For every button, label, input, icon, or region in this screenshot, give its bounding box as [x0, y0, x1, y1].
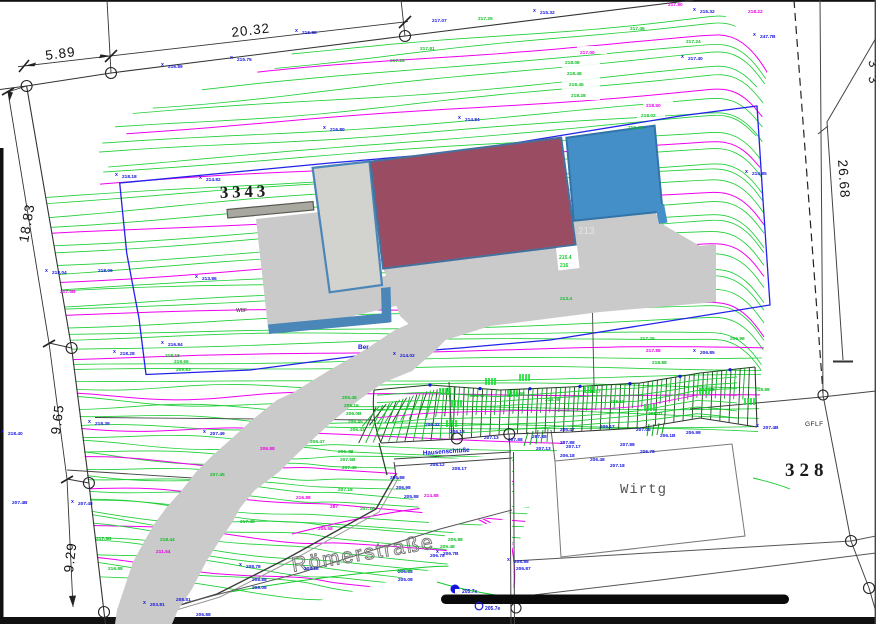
- svg-text:208.08: 208.08: [252, 585, 267, 591]
- svg-text:217.45: 217.45: [630, 26, 645, 32]
- svg-text:206.48: 206.48: [590, 457, 605, 463]
- svg-text:211.88: 211.88: [397, 568, 412, 574]
- svg-text:247.7B: 247.7B: [760, 34, 776, 40]
- svg-text:x: x: [230, 55, 233, 61]
- svg-text:207.49: 207.49: [210, 431, 225, 437]
- svg-text:x: x: [115, 172, 118, 178]
- svg-text:207.05: 207.05: [636, 427, 651, 433]
- svg-text:x: x: [436, 549, 439, 555]
- svg-text:x: x: [323, 125, 326, 131]
- svg-text:x: x: [507, 557, 510, 563]
- svg-text:x: x: [756, 423, 759, 429]
- svg-text:208.81: 208.81: [176, 597, 191, 603]
- svg-text:x: x: [745, 169, 748, 175]
- svg-text:x: x: [393, 351, 396, 357]
- svg-text:217.00: 217.00: [580, 50, 595, 56]
- svg-text:218.48: 218.48: [567, 71, 582, 77]
- svg-text:217.25: 217.25: [640, 336, 655, 342]
- svg-text:208.88: 208.88: [514, 559, 529, 565]
- svg-text:216.88: 216.88: [296, 495, 311, 501]
- svg-text:218.50: 218.50: [646, 103, 661, 109]
- svg-text:x: x: [203, 429, 206, 435]
- svg-text:208.18: 208.18: [304, 566, 319, 572]
- svg-text:x: x: [458, 115, 461, 121]
- svg-text:206.13: 206.13: [450, 429, 465, 435]
- svg-text:205.7e: 205.7e: [485, 606, 501, 612]
- svg-text:206.15: 206.15: [344, 403, 359, 409]
- svg-text:x: x: [239, 562, 242, 568]
- svg-text:207.45: 207.45: [342, 465, 357, 471]
- svg-text:217.40: 217.40: [688, 56, 703, 62]
- svg-text:x: x: [753, 32, 756, 38]
- svg-text:205.08: 205.08: [398, 577, 413, 583]
- svg-text:x: x: [195, 274, 198, 280]
- svg-text:216.80: 216.80: [330, 127, 345, 133]
- svg-text:x: x: [693, 348, 696, 354]
- svg-text:328: 328: [785, 460, 829, 481]
- svg-text:206.88: 206.88: [260, 446, 275, 452]
- svg-text:206.7B: 206.7B: [443, 551, 459, 557]
- svg-text:x: x: [533, 8, 536, 14]
- svg-text:218.18: 218.18: [122, 174, 137, 180]
- svg-text:218.18: 218.18: [610, 399, 625, 405]
- svg-text:207.48: 207.48: [78, 501, 93, 507]
- svg-text:206.47: 206.47: [310, 439, 325, 445]
- svg-text:26.68: 26.68: [835, 159, 853, 199]
- svg-text:214.85: 214.85: [752, 171, 767, 177]
- svg-text:207.88: 207.88: [508, 437, 523, 443]
- svg-text:208.78: 208.78: [246, 564, 261, 570]
- svg-text:203.81: 203.81: [150, 602, 165, 608]
- svg-text:206.45: 206.45: [348, 419, 363, 425]
- svg-text:217.07: 217.07: [432, 18, 447, 24]
- svg-text:206.88: 206.88: [196, 612, 211, 618]
- svg-text:206.42: 206.42: [425, 422, 440, 428]
- svg-text:Ber: Ber: [358, 344, 369, 351]
- svg-text:206.87: 206.87: [516, 566, 531, 572]
- svg-text:213.86: 213.86: [202, 276, 217, 282]
- svg-text:217.81: 217.81: [420, 46, 435, 52]
- svg-text:218.40: 218.40: [8, 431, 23, 437]
- svg-text:206.0B: 206.0B: [346, 411, 362, 417]
- svg-text:218.18: 218.18: [165, 353, 180, 359]
- svg-text:x: x: [71, 499, 74, 505]
- svg-text:218.39: 218.39: [95, 421, 110, 427]
- svg-text:217.25: 217.25: [478, 16, 493, 22]
- svg-text:214.84: 214.84: [465, 117, 480, 123]
- svg-text:205.88: 205.88: [448, 537, 463, 543]
- svg-text:218.45: 218.45: [569, 82, 584, 88]
- svg-text:216.84: 216.84: [168, 342, 183, 348]
- svg-text:x: x: [143, 600, 146, 606]
- svg-text:207.88: 207.88: [620, 442, 635, 448]
- svg-text:216: 216: [560, 263, 569, 269]
- svg-text:208.88: 208.88: [252, 577, 267, 583]
- svg-text:214.82: 214.82: [206, 177, 221, 183]
- svg-text:217.88: 217.88: [646, 348, 661, 354]
- svg-text:207.4B: 207.4B: [12, 500, 28, 506]
- svg-text:206.17: 206.17: [600, 424, 615, 430]
- svg-text:205.45: 205.45: [342, 395, 357, 401]
- svg-text:Wirtg: Wirtg: [620, 482, 667, 498]
- svg-text:x: x: [88, 419, 91, 425]
- svg-text:218.02: 218.02: [641, 113, 656, 119]
- svg-text:207.45: 207.45: [210, 472, 225, 478]
- svg-text:209.83: 209.83: [176, 367, 191, 373]
- svg-text:x: x: [161, 62, 164, 68]
- svg-text:217.48: 217.48: [240, 519, 255, 525]
- svg-text:216.88: 216.88: [108, 566, 123, 572]
- svg-text:218.44: 218.44: [160, 537, 175, 543]
- svg-text:216.89: 216.89: [168, 64, 183, 70]
- svg-text:x: x: [681, 54, 684, 60]
- svg-text:213.4: 213.4: [560, 296, 572, 302]
- svg-text:214.02: 214.02: [400, 353, 415, 359]
- svg-text:206.47: 206.47: [560, 427, 575, 433]
- svg-text:218.28: 218.28: [571, 93, 586, 99]
- svg-text:287.88: 287.88: [560, 440, 575, 446]
- svg-text:218.28: 218.28: [120, 351, 135, 357]
- svg-text:206.78: 206.78: [640, 449, 655, 455]
- svg-text:219.65: 219.65: [174, 359, 189, 365]
- svg-text:207.5B: 207.5B: [340, 457, 356, 463]
- svg-text:207.13: 207.13: [484, 435, 499, 441]
- svg-text:205.98: 205.98: [730, 336, 745, 342]
- svg-text:205.7x: 205.7x: [462, 589, 478, 595]
- svg-text:206.85: 206.85: [700, 350, 715, 356]
- svg-text:206.43: 206.43: [350, 427, 365, 433]
- svg-text:206.4B: 206.4B: [338, 449, 354, 455]
- svg-text:206.88: 206.88: [390, 475, 405, 481]
- svg-text:x: x: [693, 7, 696, 13]
- svg-text:218.88: 218.88: [755, 387, 770, 393]
- svg-text:207.18: 207.18: [610, 463, 625, 469]
- svg-text:287.88: 287.88: [532, 434, 547, 440]
- svg-text:217.24: 217.24: [686, 39, 701, 45]
- svg-text:214.88: 214.88: [424, 493, 439, 499]
- svg-text:x: x: [295, 28, 298, 34]
- svg-text:206.1B: 206.1B: [660, 433, 676, 439]
- svg-text:218.06: 218.06: [98, 268, 113, 274]
- svg-text:205.88: 205.88: [404, 494, 419, 500]
- svg-text:217.5B: 217.5B: [60, 289, 76, 295]
- svg-text:x: x: [161, 340, 164, 346]
- svg-text:x: x: [113, 349, 116, 355]
- svg-text:215.32: 215.32: [700, 9, 715, 15]
- svg-text:206.58: 206.58: [318, 526, 333, 532]
- svg-text:217.5B: 217.5B: [96, 536, 112, 542]
- svg-text:x: x: [45, 268, 48, 274]
- svg-text:287: 287: [330, 504, 338, 510]
- svg-text:216.48: 216.48: [628, 125, 643, 131]
- svg-text:213: 213: [578, 226, 595, 237]
- svg-text:207.18: 207.18: [360, 506, 375, 512]
- svg-text:206.98: 206.98: [686, 430, 701, 436]
- svg-text:218.22: 218.22: [748, 9, 763, 15]
- svg-text:207.01: 207.01: [648, 411, 663, 417]
- svg-text:216.88: 216.88: [302, 30, 317, 36]
- svg-text:206.18: 206.18: [560, 453, 575, 459]
- svg-text:206.98: 206.98: [396, 485, 411, 491]
- svg-text:x: x: [199, 175, 202, 181]
- svg-text:GFLF: GFLF: [805, 421, 824, 428]
- svg-text:218.08: 218.08: [565, 60, 580, 66]
- svg-text:215.4: 215.4: [559, 255, 572, 261]
- svg-text:211.54: 211.54: [156, 549, 171, 555]
- svg-text:207.4B: 207.4B: [763, 425, 779, 431]
- svg-text:218.88: 218.88: [652, 360, 667, 366]
- svg-text:218.47: 218.47: [470, 393, 485, 399]
- svg-text:208.17: 208.17: [452, 466, 467, 472]
- svg-text:WBF: WBF: [236, 308, 247, 314]
- svg-text:215.32: 215.32: [540, 10, 555, 16]
- svg-text:217.80: 217.80: [668, 2, 683, 8]
- svg-text:205.48: 205.48: [440, 544, 455, 550]
- svg-text:3343: 3343: [219, 181, 269, 202]
- svg-text:207.13: 207.13: [536, 446, 551, 452]
- svg-text:208.12: 208.12: [430, 462, 445, 468]
- svg-text:215.75: 215.75: [237, 57, 252, 63]
- svg-text:207.18: 207.18: [338, 487, 353, 493]
- svg-text:218.04: 218.04: [52, 270, 67, 276]
- svg-text:x: x: [1, 429, 4, 435]
- svg-text:217.28: 217.28: [390, 58, 405, 64]
- svg-text:218.28: 218.28: [545, 397, 560, 403]
